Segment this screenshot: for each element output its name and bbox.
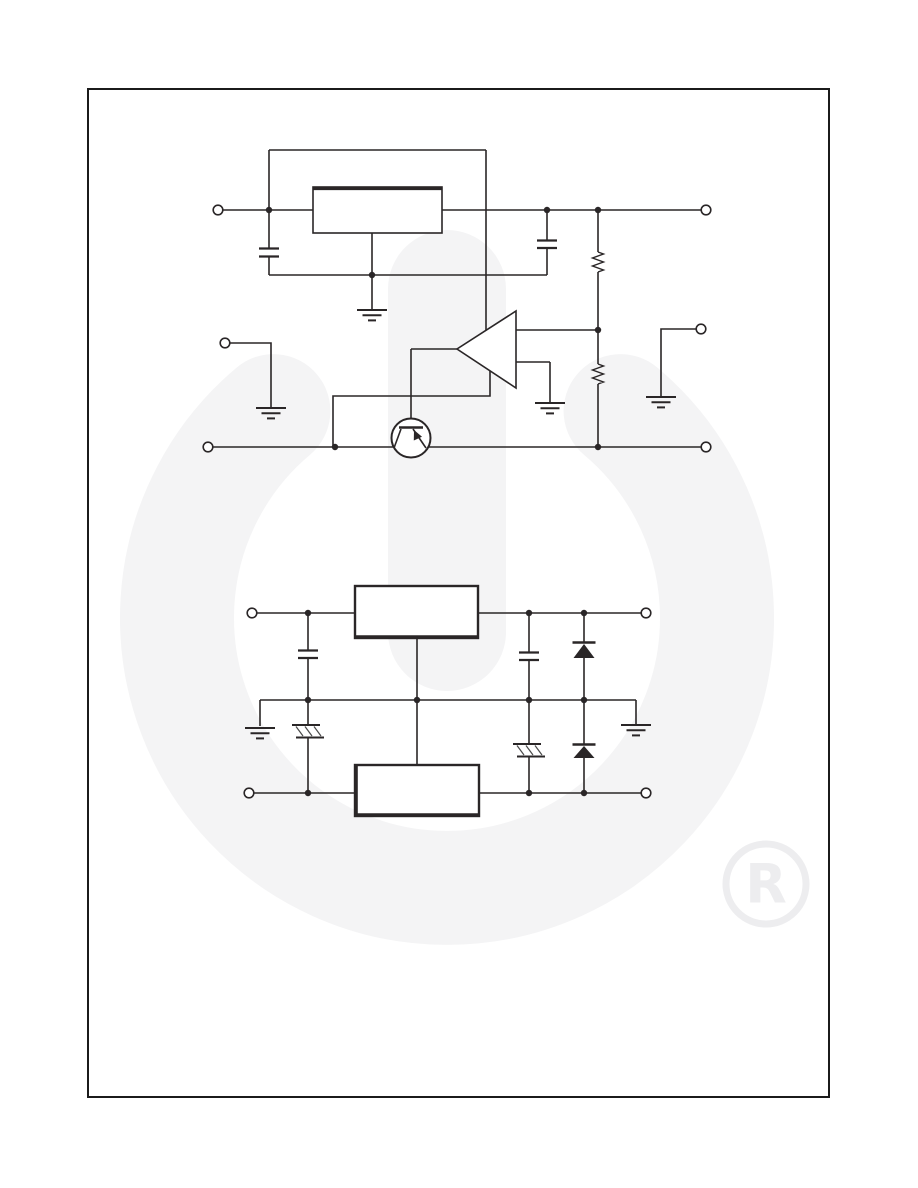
junction-dot [581,610,587,616]
junction-dot [544,207,550,213]
junction-dot [305,610,311,616]
terminal-circle [220,338,230,348]
registered-mark-letter: R [745,853,787,916]
terminal-circle [641,788,651,798]
terminal-circle [701,442,711,452]
junction-dot [332,444,338,450]
junction-dot [526,790,532,796]
junction-dot [581,790,587,796]
terminal-circle [244,788,254,798]
regulator-box [313,187,442,233]
junction-dot [305,790,311,796]
junction-dot [305,697,311,703]
terminal-circle [701,205,711,215]
junction-dot [526,610,532,616]
junction-dot [581,697,587,703]
junction-dot [414,697,420,703]
terminal-circle [213,205,223,215]
junction-dot [369,272,375,278]
regulator-box [355,586,478,638]
junction-dot [595,444,601,450]
junction-dot [595,207,601,213]
terminal-circle [641,608,651,618]
terminal-circle [696,324,706,334]
terminal-circle [247,608,257,618]
terminal-circle [203,442,213,452]
junction-dot [266,207,272,213]
junction-dot [595,327,601,333]
datasheet-page: R [0,0,918,1188]
junction-dot [526,697,532,703]
regulator-box [355,765,479,816]
schematic-svg: R [0,0,918,1188]
